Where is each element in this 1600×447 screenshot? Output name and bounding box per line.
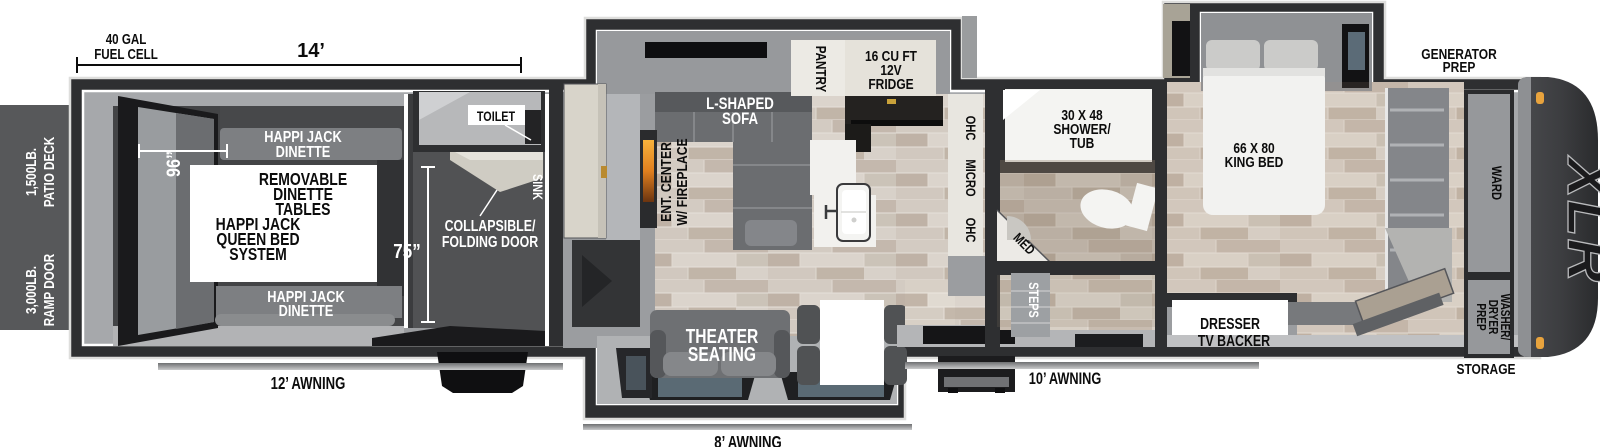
svg-text:ENT. CENTER: ENT. CENTER xyxy=(658,142,674,222)
svg-text:SEATING: SEATING xyxy=(688,343,756,365)
svg-text:PANTRY: PANTRY xyxy=(813,46,830,93)
svg-text:14’: 14’ xyxy=(297,40,325,62)
svg-text:FUEL CELL: FUEL CELL xyxy=(94,46,158,63)
svg-text:WARD: WARD xyxy=(1489,166,1504,200)
svg-text:PATIO DECK: PATIO DECK xyxy=(41,137,58,208)
svg-text:3,000LB.: 3,000LB. xyxy=(23,266,40,314)
svg-text:XLR: XLR xyxy=(1555,155,1600,284)
svg-text:SINK: SINK xyxy=(530,174,545,200)
svg-text:PREP: PREP xyxy=(1443,59,1476,76)
svg-text:W/ FIREPLACE: W/ FIREPLACE xyxy=(674,138,690,225)
svg-text:DINETTE: DINETTE xyxy=(279,303,334,321)
svg-text:FRIDGE: FRIDGE xyxy=(868,76,913,93)
svg-text:SYSTEM: SYSTEM xyxy=(229,246,287,265)
svg-text:KING BED: KING BED xyxy=(1225,154,1284,171)
svg-text:TV BACKER: TV BACKER xyxy=(1198,332,1270,350)
svg-text:PREP: PREP xyxy=(1474,303,1487,331)
svg-text:DRESSER: DRESSER xyxy=(1200,315,1260,333)
svg-text:OHC: OHC xyxy=(963,218,978,243)
svg-text:RAMP DOOR: RAMP DOOR xyxy=(41,253,58,326)
svg-text:STEPS: STEPS xyxy=(1026,282,1041,317)
svg-text:OHC: OHC xyxy=(963,116,978,141)
svg-text:1,500LB.: 1,500LB. xyxy=(23,148,40,196)
svg-text:10’ AWNING: 10’ AWNING xyxy=(1029,369,1101,388)
svg-text:SOFA: SOFA xyxy=(722,110,758,129)
svg-text:75”: 75” xyxy=(393,240,420,263)
svg-text:STORAGE: STORAGE xyxy=(1456,361,1515,378)
svg-text:TUB: TUB xyxy=(1070,135,1095,152)
svg-text:8’ AWNING: 8’ AWNING xyxy=(714,433,781,447)
svg-text:FOLDING DOOR: FOLDING DOOR xyxy=(442,233,538,251)
svg-text:MICRO: MICRO xyxy=(963,159,978,196)
svg-text:12’ AWNING: 12’ AWNING xyxy=(271,374,346,393)
svg-text:96”: 96” xyxy=(163,151,185,177)
svg-text:TOILET: TOILET xyxy=(477,109,516,124)
svg-text:DINETTE: DINETTE xyxy=(276,144,331,162)
